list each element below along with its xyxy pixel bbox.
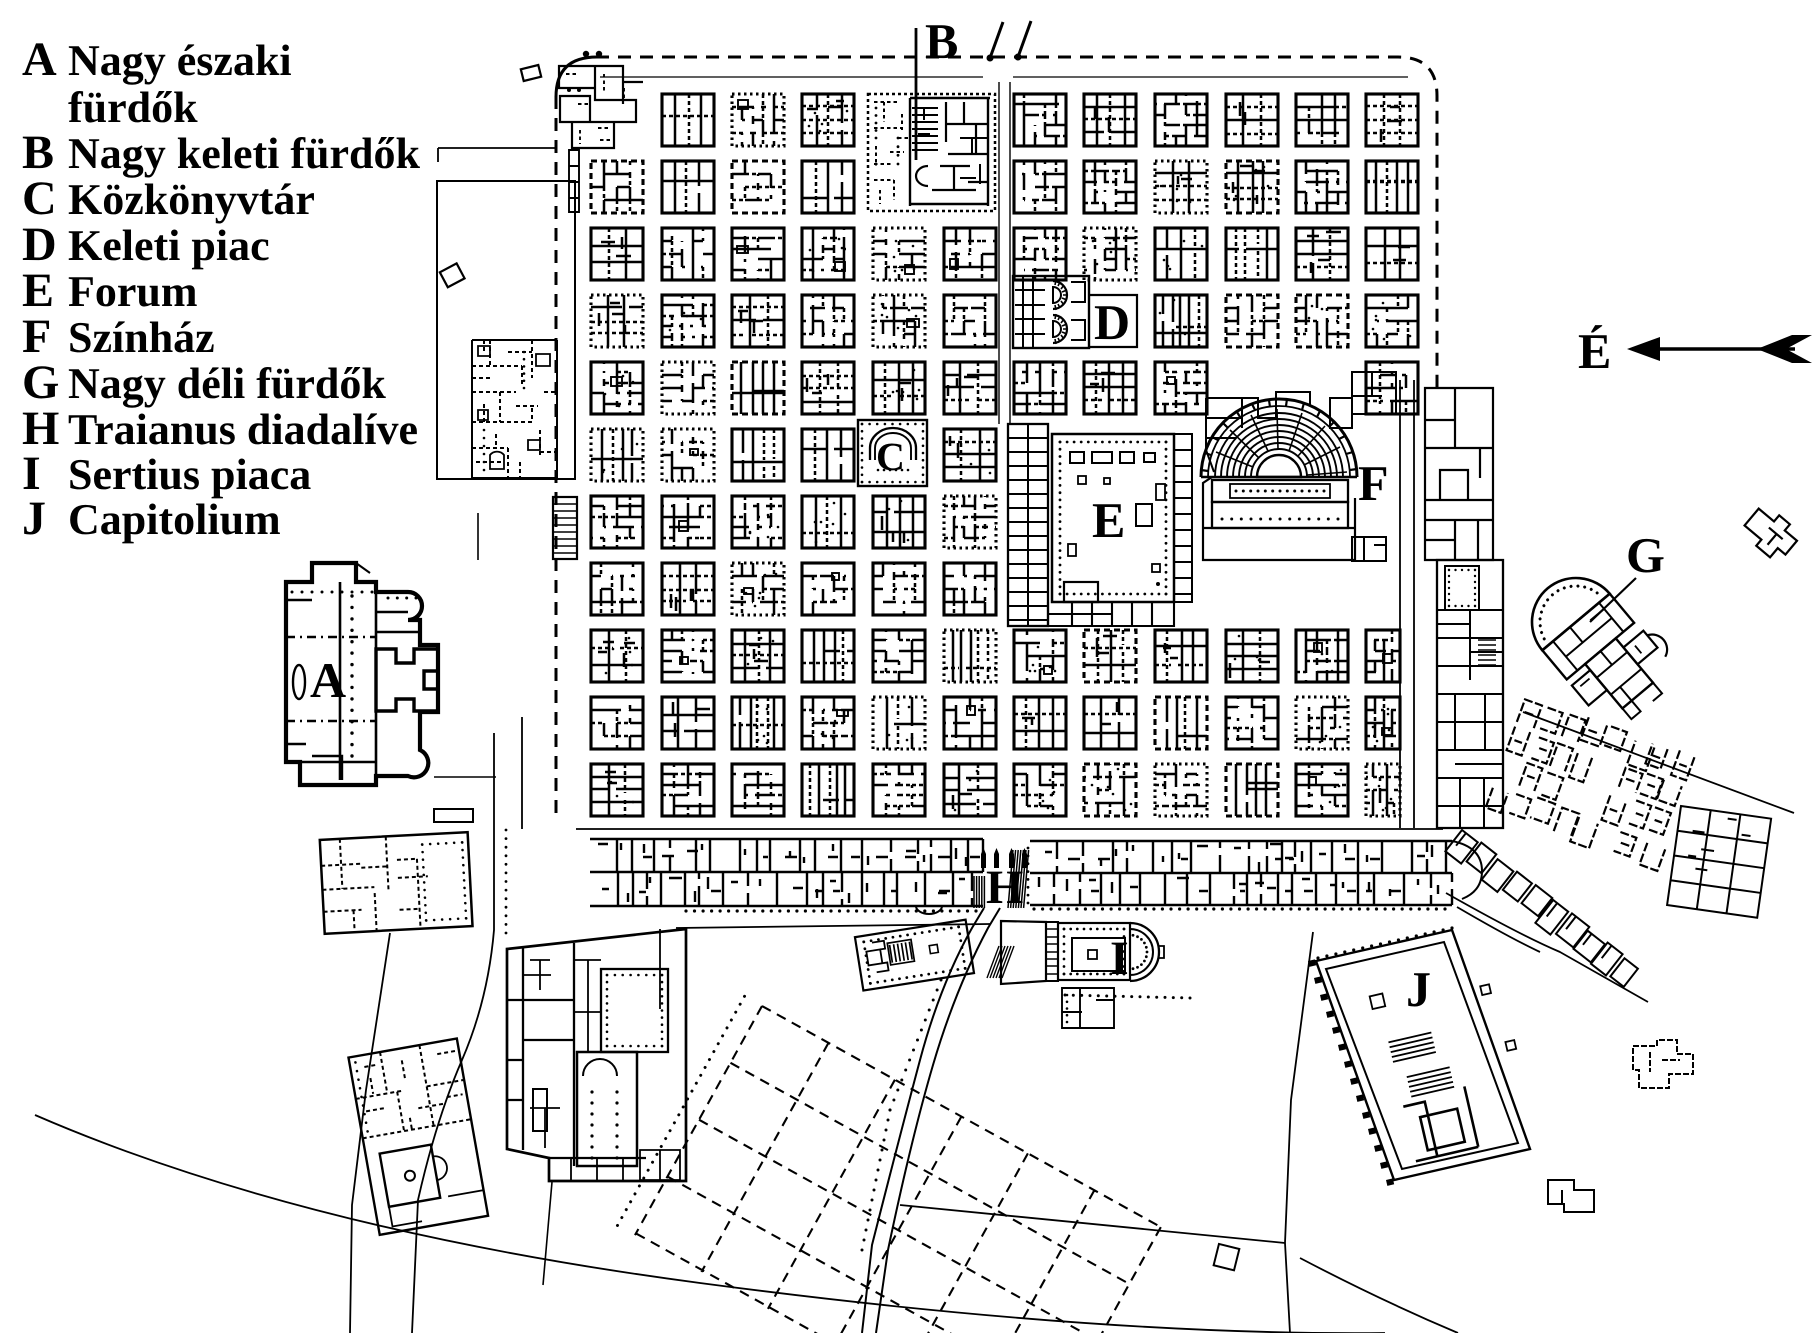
svg-text:É: É [1578,323,1611,379]
svg-text:Capitolium: Capitolium [68,495,281,544]
svg-text:Keleti piac: Keleti piac [68,221,270,270]
svg-text:F: F [1358,455,1389,511]
svg-text:Sertius piaca: Sertius piaca [68,450,311,499]
svg-text:Közkönyvtár: Közkönyvtár [68,175,315,224]
svg-text:J: J [22,492,46,545]
svg-text:Traianus diadalíve: Traianus diadalíve [68,405,418,454]
svg-text:I: I [1110,932,1129,985]
svg-text:Nagy déli fürdők: Nagy déli fürdők [68,359,386,408]
svg-text:A: A [22,33,57,86]
svg-text:J: J [1406,961,1431,1017]
svg-text:D: D [1094,294,1130,350]
svg-text:A: A [310,652,346,708]
svg-text:C: C [876,434,905,479]
svg-text:B: B [925,13,958,69]
svg-text:E: E [1092,492,1125,548]
svg-text:Forum: Forum [68,267,198,316]
svg-text:G: G [1626,527,1665,583]
svg-text:H: H [986,861,1023,914]
svg-text:Színház: Színház [68,313,215,362]
svg-text:Nagy északi: Nagy északi [68,36,292,85]
svg-text:fürdők: fürdők [68,83,198,132]
svg-text:Nagy keleti fürdők: Nagy keleti fürdők [68,129,421,178]
